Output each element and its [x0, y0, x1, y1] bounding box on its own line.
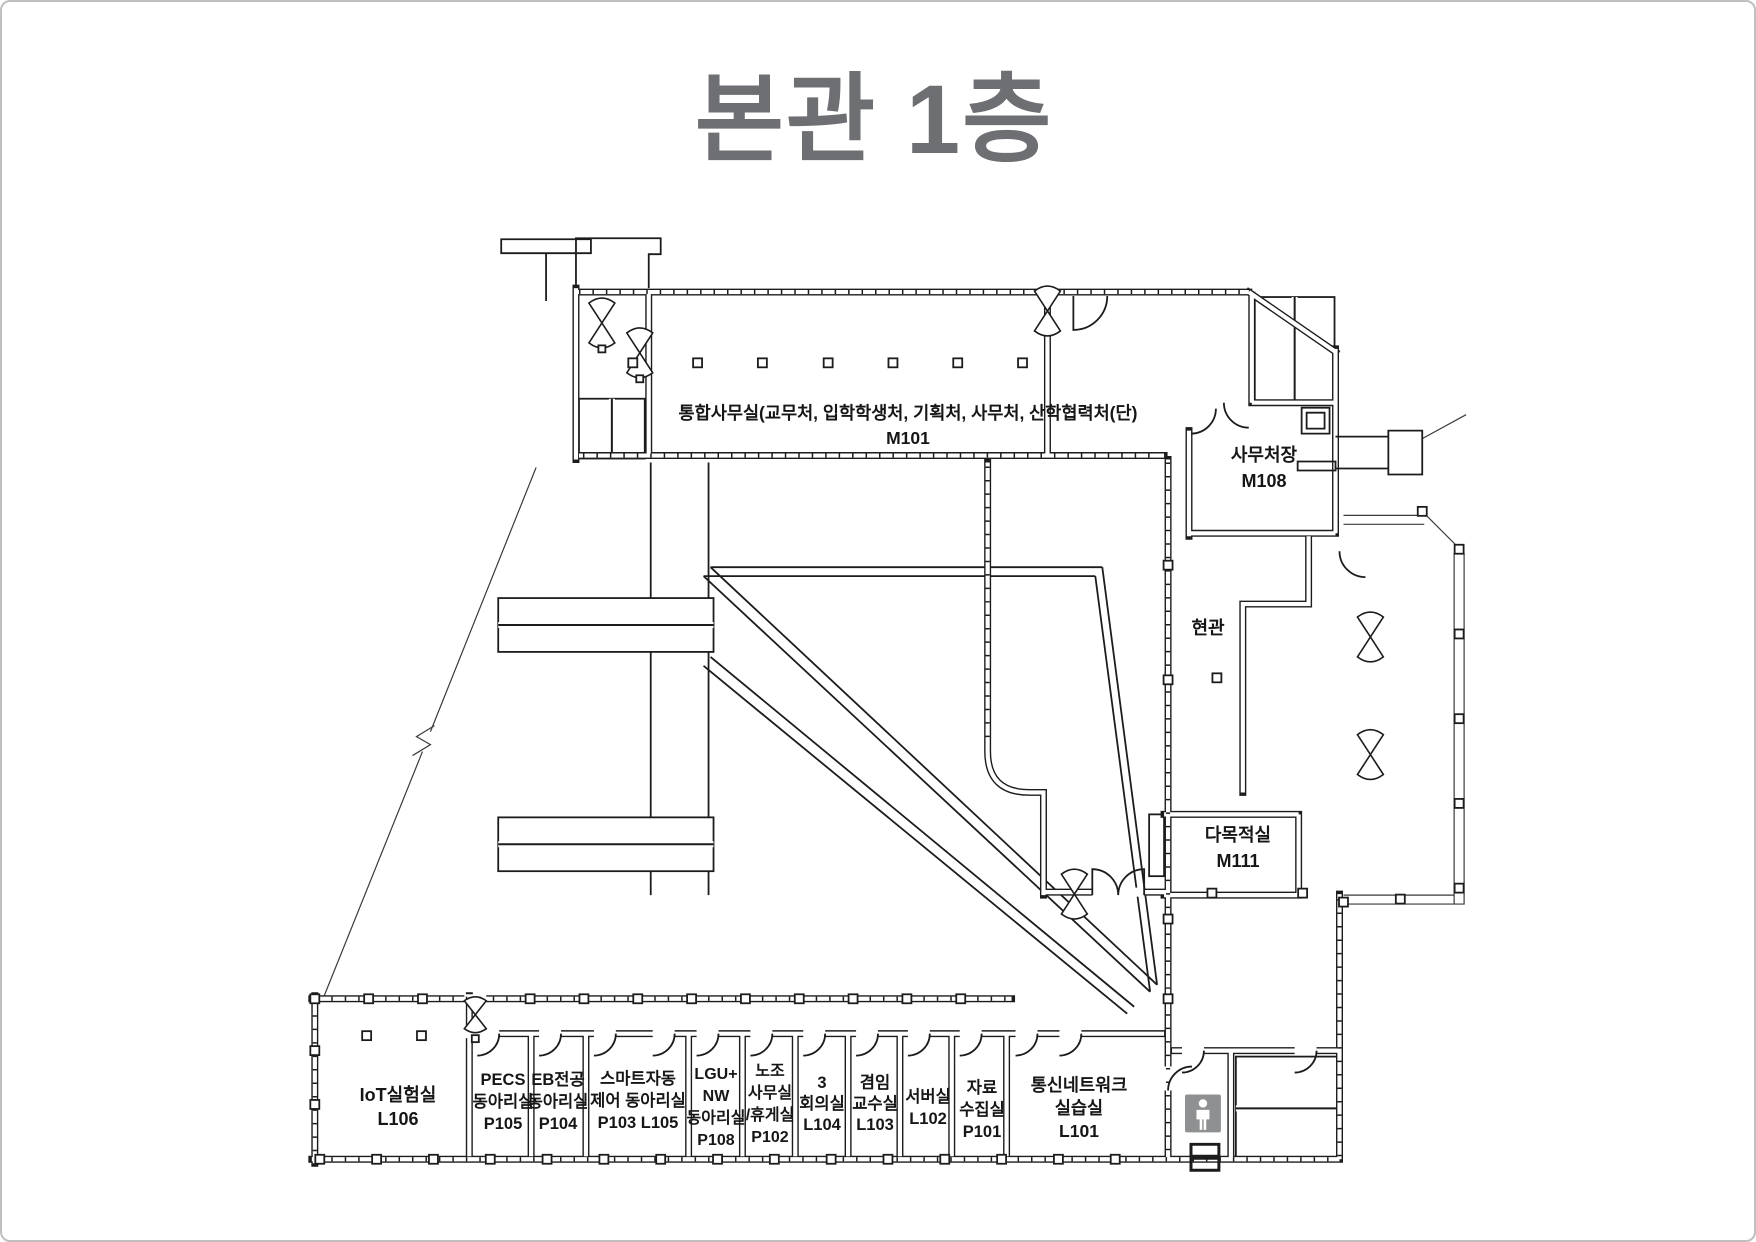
- label-line: 사무처장: [1231, 442, 1297, 468]
- atrium-ramp: [651, 463, 1157, 1014]
- label-line: L102: [905, 1108, 951, 1130]
- label-line: 회의실: [799, 1094, 845, 1115]
- male-restroom-icon: [1185, 1094, 1221, 1132]
- label-line: 통신네트워크: [1031, 1074, 1128, 1097]
- label-line: P104: [528, 1113, 589, 1135]
- room-label-l106: IoT실험실 L106: [360, 1083, 437, 1131]
- room-label-m111: 다목적실 M111: [1205, 822, 1271, 874]
- page-title: 본관 1층: [695, 70, 1054, 170]
- label-line: /휴게실: [746, 1105, 795, 1127]
- room-label-p102: 노조 사무실 /휴게실 P102: [746, 1061, 795, 1149]
- label-line: L103: [852, 1115, 898, 1136]
- room-label-l102: 서버실 L102: [905, 1086, 951, 1130]
- label-line: 수집실: [959, 1099, 1005, 1121]
- label-line: P108: [687, 1130, 746, 1152]
- label-line: 실습실: [1031, 1097, 1128, 1120]
- label-line: 동아리실: [528, 1091, 589, 1113]
- label-line: 동아리실: [473, 1091, 534, 1113]
- label-line: 사무실: [746, 1083, 795, 1105]
- room-label-l103: 겸임 교수실 L103: [852, 1073, 898, 1136]
- toilet-stalls: [1191, 1144, 1219, 1170]
- room-label-l101: 통신네트워크 실습실 L101: [1031, 1074, 1128, 1143]
- room-label-m101: 통합사무실(교무처, 입학학생처, 기획처, 사무처, 산학협력처(단) M10…: [679, 401, 1138, 451]
- label-line: M111: [1205, 848, 1271, 874]
- label-line: L106: [360, 1107, 437, 1131]
- label-line: 통합사무실(교무처, 입학학생처, 기획처, 사무처, 산학협력처(단): [679, 401, 1138, 426]
- label-line: M101: [679, 426, 1138, 451]
- label-line: 동아리실: [687, 1108, 746, 1130]
- label-line: 자료: [959, 1077, 1005, 1099]
- room-label-p101: 자료 수집실 P101: [959, 1077, 1005, 1143]
- label-line: L104: [799, 1115, 845, 1136]
- floor-plan-page: 본관 1층 통합사무실(교무처, 입학학생처, 기획처, 사무처, 산학협력처(…: [0, 0, 1756, 1242]
- room-label-lobby: 현관: [1191, 615, 1224, 641]
- room-label-p105: PECS 동아리실 P105: [473, 1069, 534, 1135]
- label-line: M108: [1231, 468, 1297, 494]
- label-line: 현관: [1191, 615, 1224, 641]
- label-line: P105: [473, 1113, 534, 1135]
- label-line: P102: [746, 1127, 795, 1149]
- label-line: NW: [687, 1086, 746, 1108]
- label-line: 서버실: [905, 1086, 951, 1108]
- label-line: 3: [799, 1073, 845, 1094]
- label-line: 다목적실: [1205, 822, 1271, 848]
- label-line: P101: [959, 1121, 1005, 1143]
- stairs-m111-side: [1149, 814, 1164, 876]
- boundary-line: [322, 467, 536, 1001]
- label-line: LGU+: [687, 1064, 746, 1086]
- room-label-l104: 3 회의실 L104: [799, 1073, 845, 1136]
- label-line: 교수실: [852, 1094, 898, 1115]
- floor-plan-drawing: [2, 2, 1754, 1240]
- label-line: EB전공: [528, 1069, 589, 1091]
- label-line: 겸임: [852, 1073, 898, 1094]
- label-line: P103 L105: [590, 1112, 686, 1134]
- label-line: 노조: [746, 1061, 795, 1083]
- label-line: PECS: [473, 1069, 534, 1091]
- label-line: IoT실험실: [360, 1083, 437, 1107]
- label-line: 스마트자동: [590, 1068, 686, 1090]
- label-line: 제어 동아리실: [590, 1090, 686, 1112]
- room-label-p104: EB전공 동아리실 P104: [528, 1069, 589, 1135]
- room-label-m108: 사무처장 M108: [1231, 442, 1297, 494]
- label-line: L101: [1031, 1120, 1128, 1143]
- room-label-p103: 스마트자동 제어 동아리실 P103 L105: [590, 1068, 686, 1134]
- room-label-p108: LGU+ NW 동아리실 P108: [687, 1064, 746, 1152]
